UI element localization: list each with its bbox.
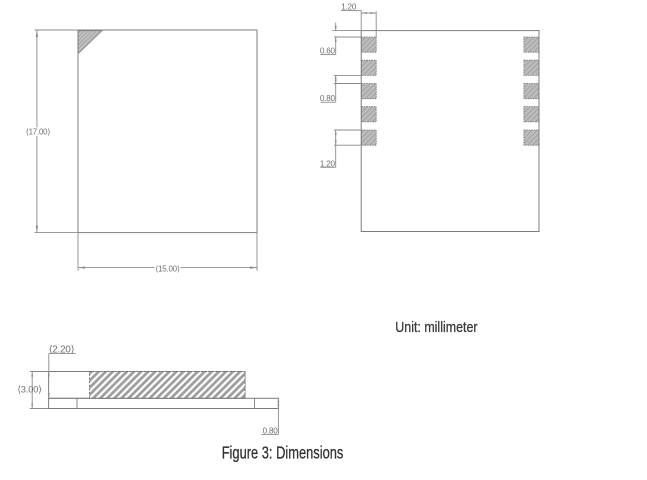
- svg-text:1.20: 1.20: [341, 3, 357, 12]
- svg-text:0.60: 0.60: [320, 47, 336, 56]
- svg-text:⟨15.00⟩: ⟨15.00⟩: [155, 265, 180, 274]
- svg-text:Figure 3: Dimensions: Figure 3: Dimensions: [222, 443, 344, 462]
- svg-text:Unit: millimeter: Unit: millimeter: [395, 319, 478, 335]
- svg-text:⟨17.00⟩: ⟨17.00⟩: [26, 127, 51, 136]
- svg-text:1.20: 1.20: [320, 159, 336, 168]
- svg-text:0.80: 0.80: [320, 94, 336, 103]
- svg-text:⟨3.00⟩: ⟨3.00⟩: [17, 384, 41, 395]
- svg-text:0.80: 0.80: [263, 426, 279, 435]
- svg-text:⟨2.20⟩: ⟨2.20⟩: [49, 344, 75, 355]
